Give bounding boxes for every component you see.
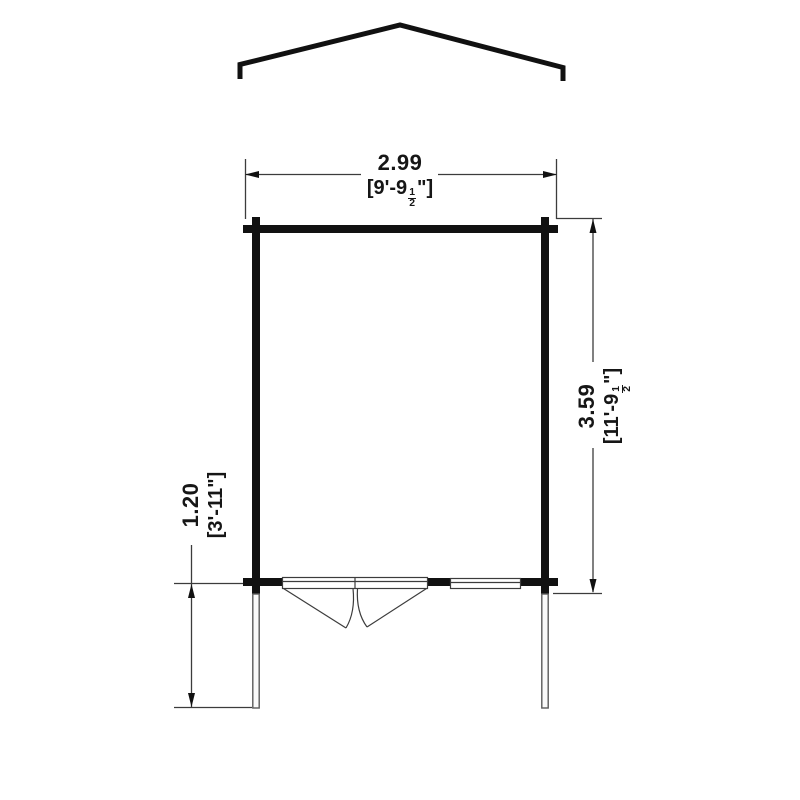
canopy-post-right [542, 594, 548, 708]
overhang-imperial-value: [3'-11"] [203, 450, 229, 560]
depth-imperial-prefix: [11'-9 [601, 394, 623, 444]
width-imperial-prefix: [9'-9 [367, 177, 407, 199]
door-right-swing-arc [357, 589, 367, 628]
roof-gable-outline [240, 25, 563, 81]
depth-imperial-suffix: "] [601, 368, 623, 384]
cabin-walls [243, 217, 558, 594]
depth-dimension-label: 3.59 [11'-912"] [574, 346, 626, 466]
right-wall [541, 217, 549, 594]
width-arrow-right [543, 171, 557, 178]
overhang-dimension-lines [174, 545, 252, 708]
door-left-swing-arc [346, 589, 354, 629]
width-arrow-left [245, 171, 259, 178]
door-right-leaf-line [367, 589, 427, 628]
depth-imperial-value: [11'-912"] [599, 346, 634, 466]
overhang-metric-value: 1.20 [178, 450, 203, 560]
left-wall [252, 217, 260, 594]
width-dimension-label: 2.99 [9'-912"] [320, 150, 480, 210]
width-fraction: 12 [408, 188, 416, 210]
technical-drawing-canvas: 2.99 [9'-912"] 1.20 [3'-11"] 3.59 [11'-9… [0, 0, 800, 800]
double-door [283, 578, 428, 629]
depth-fraction-denominator: 2 [623, 385, 633, 393]
front-wall-left-segment [243, 578, 282, 586]
depth-arrow-down [590, 579, 597, 593]
canopy-posts [253, 594, 548, 708]
canopy-post-left [253, 594, 259, 708]
depth-fraction: 12 [612, 385, 634, 393]
width-imperial-suffix: "] [417, 177, 433, 199]
overhang-dimension-label: 1.20 [3'-11"] [178, 450, 230, 560]
window-frame [451, 579, 521, 589]
width-fraction-denominator: 2 [408, 199, 416, 209]
depth-arrow-up [590, 219, 597, 233]
overhang-arrow-down [188, 693, 195, 707]
front-wall-right-segment [521, 578, 558, 586]
door-left-leaf-line [284, 589, 347, 629]
overhang-arrow-up [188, 584, 195, 598]
width-metric-value: 2.99 [320, 150, 480, 175]
rear-wall [243, 225, 558, 233]
front-wall-middle-segment [428, 578, 450, 586]
width-imperial-value: [9'-912"] [320, 175, 480, 210]
front-window [451, 579, 521, 589]
depth-metric-value: 3.59 [574, 346, 599, 466]
floor-plan-linework [0, 0, 800, 800]
